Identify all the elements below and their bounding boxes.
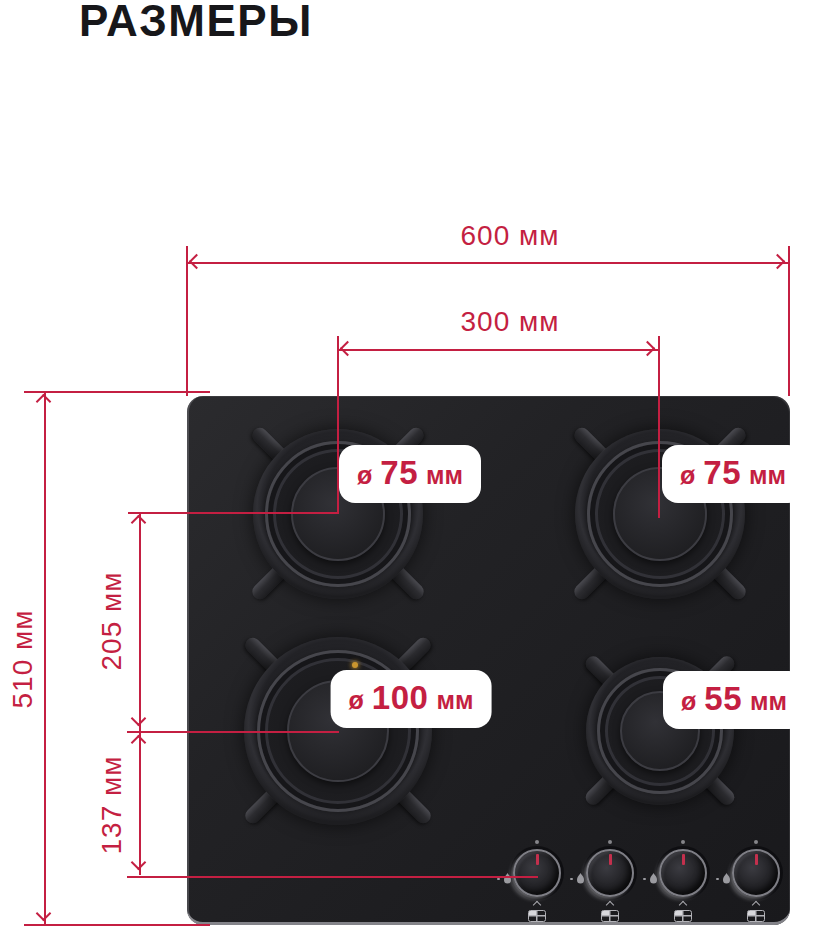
burner-position-icon [674,910,692,922]
diameter-unit: мм [426,461,463,490]
dimension-arrow [131,515,147,531]
dimension-line-width [188,262,789,264]
extension-line [788,246,790,396]
dimension-label-depth: 510 мм [7,610,39,709]
dimension-label-row-spacing: 205 мм [96,572,128,671]
control-knob-1 [511,840,563,924]
dimension-line-row-spacing [139,514,141,731]
dimension-line-burner-spacing [338,349,660,351]
knob-dot-icon [754,840,758,844]
diameter-unit: мм [750,687,787,716]
dimension-arrow [131,855,147,871]
diameter-badge-top-left: ø75мм [339,445,481,503]
control-knob-4 [730,840,782,924]
dimension-arrow [189,254,205,270]
diameter-value: 55 [704,680,742,718]
dimension-line-depth [44,393,46,925]
dimension-label-front-offset: 137 мм [96,756,128,855]
igniter-dot [352,662,358,668]
dimension-label-width: 600 мм [461,220,560,252]
dimension-arrow [640,341,656,357]
knob-dot-icon [608,840,612,844]
diameter-value: 100 [372,679,429,717]
connector-line [127,876,538,878]
control-knob-2 [584,840,636,924]
diameter-unit: мм [749,461,786,490]
diameter-symbol: ø [680,461,695,490]
burner-bottom-right [558,629,762,833]
burner-top-right [542,396,778,632]
dimension-label-burner-spacing: 300 мм [461,306,560,338]
dimension-arrow [36,394,52,410]
dimension-arrow [340,341,356,357]
dimension-arrow [131,735,147,751]
extension-line [186,246,188,396]
knob-indicator [682,854,685,865]
caret-up-icon [606,901,614,909]
diameter-badge-top-right: ø75мм [662,445,804,503]
diameter-value: 75 [703,454,741,492]
flame-icon [570,873,585,885]
diameter-badge-bottom-right: ø55мм [663,671,805,729]
dimension-arrow [131,711,147,727]
connector-line [128,512,339,514]
extension-line [24,391,210,393]
caret-up-icon [533,901,541,909]
diameter-unit: мм [436,686,473,715]
knob-dot-icon [535,840,539,844]
burner-position-icon [747,910,765,922]
dimension-arrow [770,254,786,270]
flame-icon [497,873,512,885]
knob [659,849,707,897]
dimension-arrow [36,906,52,922]
diameter-value: 75 [380,454,418,492]
extension-line [658,336,660,518]
diameter-symbol: ø [681,687,696,716]
burner-position-icon [601,910,619,922]
knob-indicator [609,854,612,865]
burner-position-icon [528,910,546,922]
knob-indicator [755,854,758,865]
knob-dot-icon [681,840,685,844]
flame-icon [716,873,731,885]
diameter-symbol: ø [349,686,364,715]
connector-line [127,731,339,733]
flame-icon [643,873,658,885]
knob [586,849,634,897]
page-title: РАЗМЕРЫ [79,0,313,46]
knob [732,849,780,897]
caret-up-icon [679,901,687,909]
knob [513,849,561,897]
caret-up-icon [752,901,760,909]
knob-indicator [536,854,539,865]
control-knob-3 [657,840,709,924]
diameter-symbol: ø [357,461,372,490]
dimension-line-front-offset [139,733,141,875]
extension-line [24,924,210,926]
diameter-badge-bottom-left: ø100мм [331,670,492,728]
